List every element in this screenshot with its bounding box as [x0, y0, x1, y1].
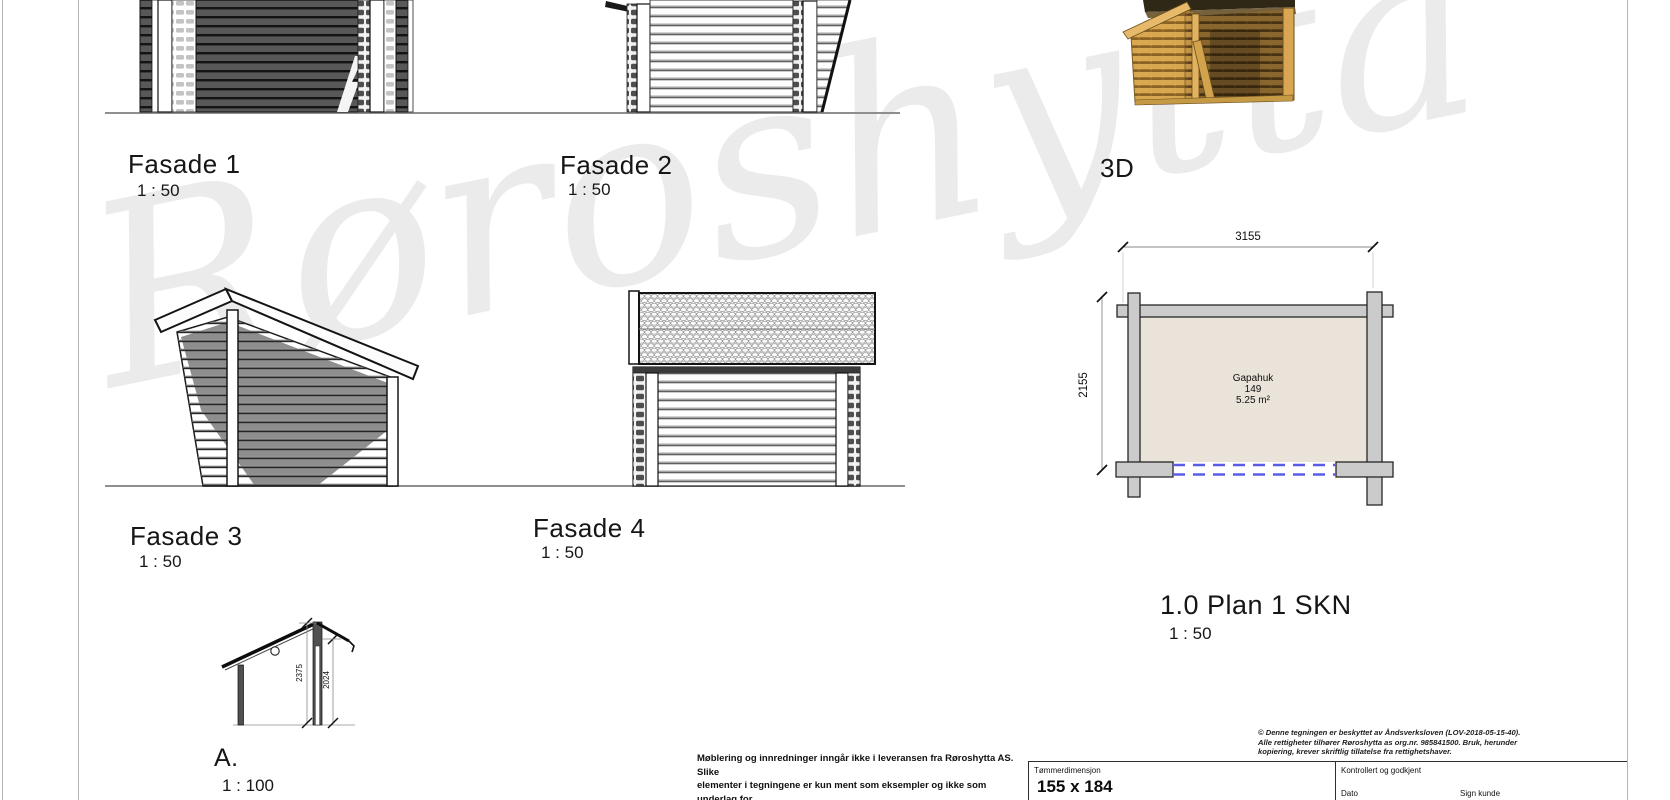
section-title: A. [214, 744, 239, 773]
front-wall-stub-right [1336, 462, 1393, 477]
log-wall [633, 367, 860, 486]
plan-drawing: 3155 2155 Gapahuk 149 5.25 m² [1070, 215, 1410, 510]
approved-label: Kontrollert og godkjent [1341, 766, 1421, 775]
fasade2-title: Fasade 2 [560, 150, 672, 181]
section-dim-eave-height: 2024 [322, 671, 331, 689]
low-wall [238, 665, 244, 725]
plan-dim-width: 3155 [1235, 231, 1261, 243]
right-post [387, 377, 398, 486]
room-number: 149 [1245, 384, 1262, 395]
timber-dimension-value: 155 x 184 [1037, 777, 1113, 797]
fasade3-elevation-drawing [105, 280, 435, 488]
titleblock-divider [1335, 761, 1336, 800]
fasade1-elevation-drawing [105, 0, 450, 113]
roof-slope [222, 623, 316, 667]
furnishing-disclaimer: Møblering og innredninger inngår ikke i … [697, 752, 1027, 800]
fasade3-title: Fasade 3 [130, 521, 242, 552]
titleblock-top-border [1028, 761, 1627, 762]
room-name: Gapahuk [1233, 373, 1275, 384]
fasade4-scale: 1 : 50 [541, 543, 584, 563]
3d-title: 3D [1100, 153, 1134, 184]
section-a-drawing: 2375 2024 [215, 610, 365, 740]
plan-scale: 1 : 50 [1169, 624, 1212, 644]
section-dim-total-height: 2375 [295, 664, 304, 682]
front-wall-stub-left [1116, 462, 1173, 477]
drawing-sheet: Røroshytta Fasade 1 1 : 50 Fasade 2 1 : … [0, 0, 1670, 800]
3d-render-drawing [1115, 0, 1315, 113]
room-area-value: 5.25 m² [1236, 395, 1271, 406]
sheet-border-left-outer [2, 0, 3, 800]
copyright-notice: © Denne tegningen er beskyttet av Åndsve… [1258, 728, 1538, 757]
plan-dim-depth: 2155 [1078, 372, 1090, 398]
plan-title: 1.0 Plan 1 SKN [1160, 590, 1352, 621]
fasade2-scale: 1 : 50 [568, 180, 611, 200]
fasade4-elevation-drawing [625, 285, 885, 487]
fasade3-scale: 1 : 50 [139, 552, 182, 572]
timber-dimension-label: Tømmerdimensjon [1034, 766, 1101, 775]
fasade2-elevation-drawing [600, 0, 860, 113]
date-label: Dato [1341, 789, 1358, 798]
center-post [227, 310, 238, 486]
back-wall [1117, 305, 1393, 317]
sheet-border-left-inner [78, 0, 79, 800]
fasade1-title: Fasade 1 [128, 149, 240, 180]
sign-customer-label: Sign kunde [1460, 789, 1500, 798]
sheet-border-right [1627, 0, 1628, 800]
corner-post [1283, 8, 1294, 100]
roof-edge-strip [629, 291, 639, 364]
fasade1-scale: 1 : 50 [137, 181, 180, 201]
titleblock-left-border [1028, 761, 1029, 800]
fasade4-title: Fasade 4 [533, 513, 645, 544]
section-scale: 1 : 100 [222, 776, 274, 796]
roof-detail [271, 647, 279, 655]
